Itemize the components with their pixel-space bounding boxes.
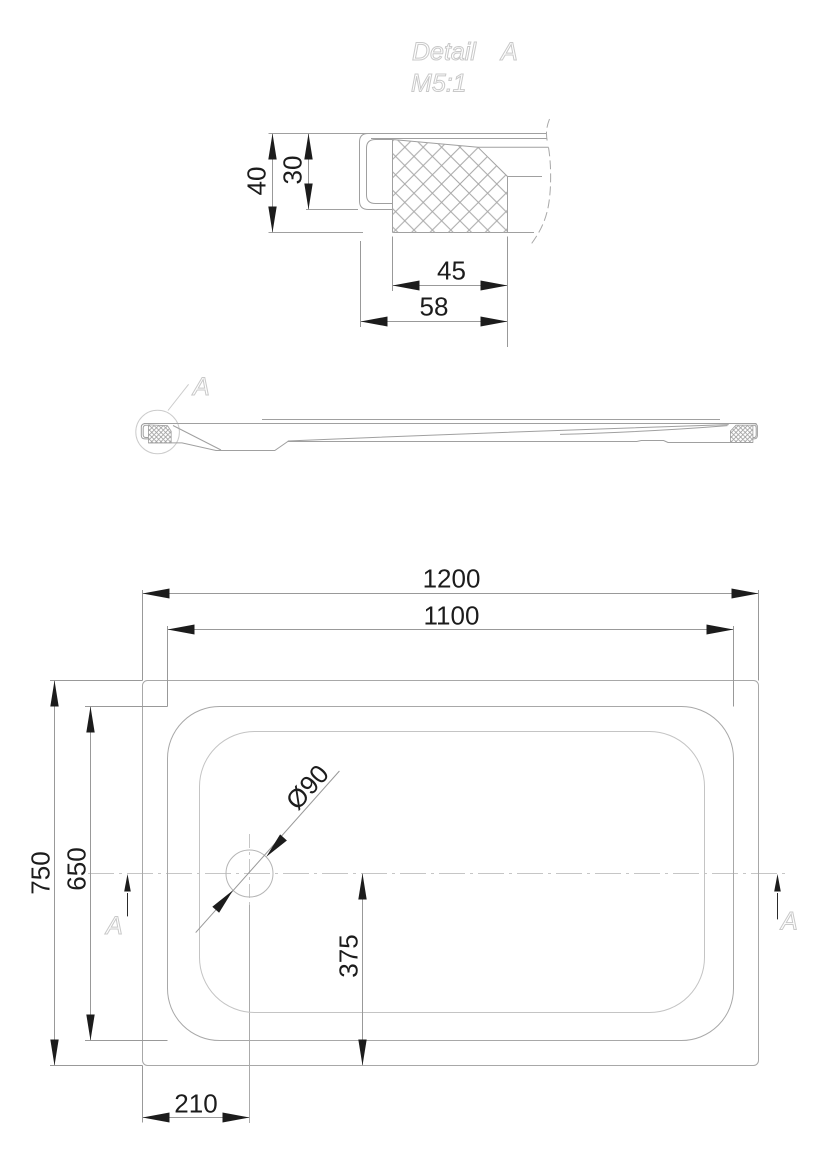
svg-text:58: 58 [420, 292, 449, 322]
svg-text:M5:1: M5:1 [411, 70, 467, 98]
svg-text:40: 40 [242, 167, 272, 196]
svg-text:1200: 1200 [423, 564, 481, 594]
svg-text:A: A [499, 38, 518, 66]
svg-text:210: 210 [174, 1089, 217, 1119]
svg-text:650: 650 [62, 847, 92, 890]
svg-text:30: 30 [278, 156, 308, 185]
svg-text:A: A [779, 908, 798, 936]
svg-text:Ø90: Ø90 [280, 759, 335, 816]
svg-text:750: 750 [26, 851, 56, 894]
svg-text:1100: 1100 [424, 601, 480, 631]
svg-text:Detail: Detail [412, 38, 477, 66]
svg-text:A: A [104, 912, 123, 940]
svg-text:375: 375 [334, 934, 364, 977]
svg-text:45: 45 [437, 256, 466, 286]
svg-text:A: A [191, 373, 210, 401]
